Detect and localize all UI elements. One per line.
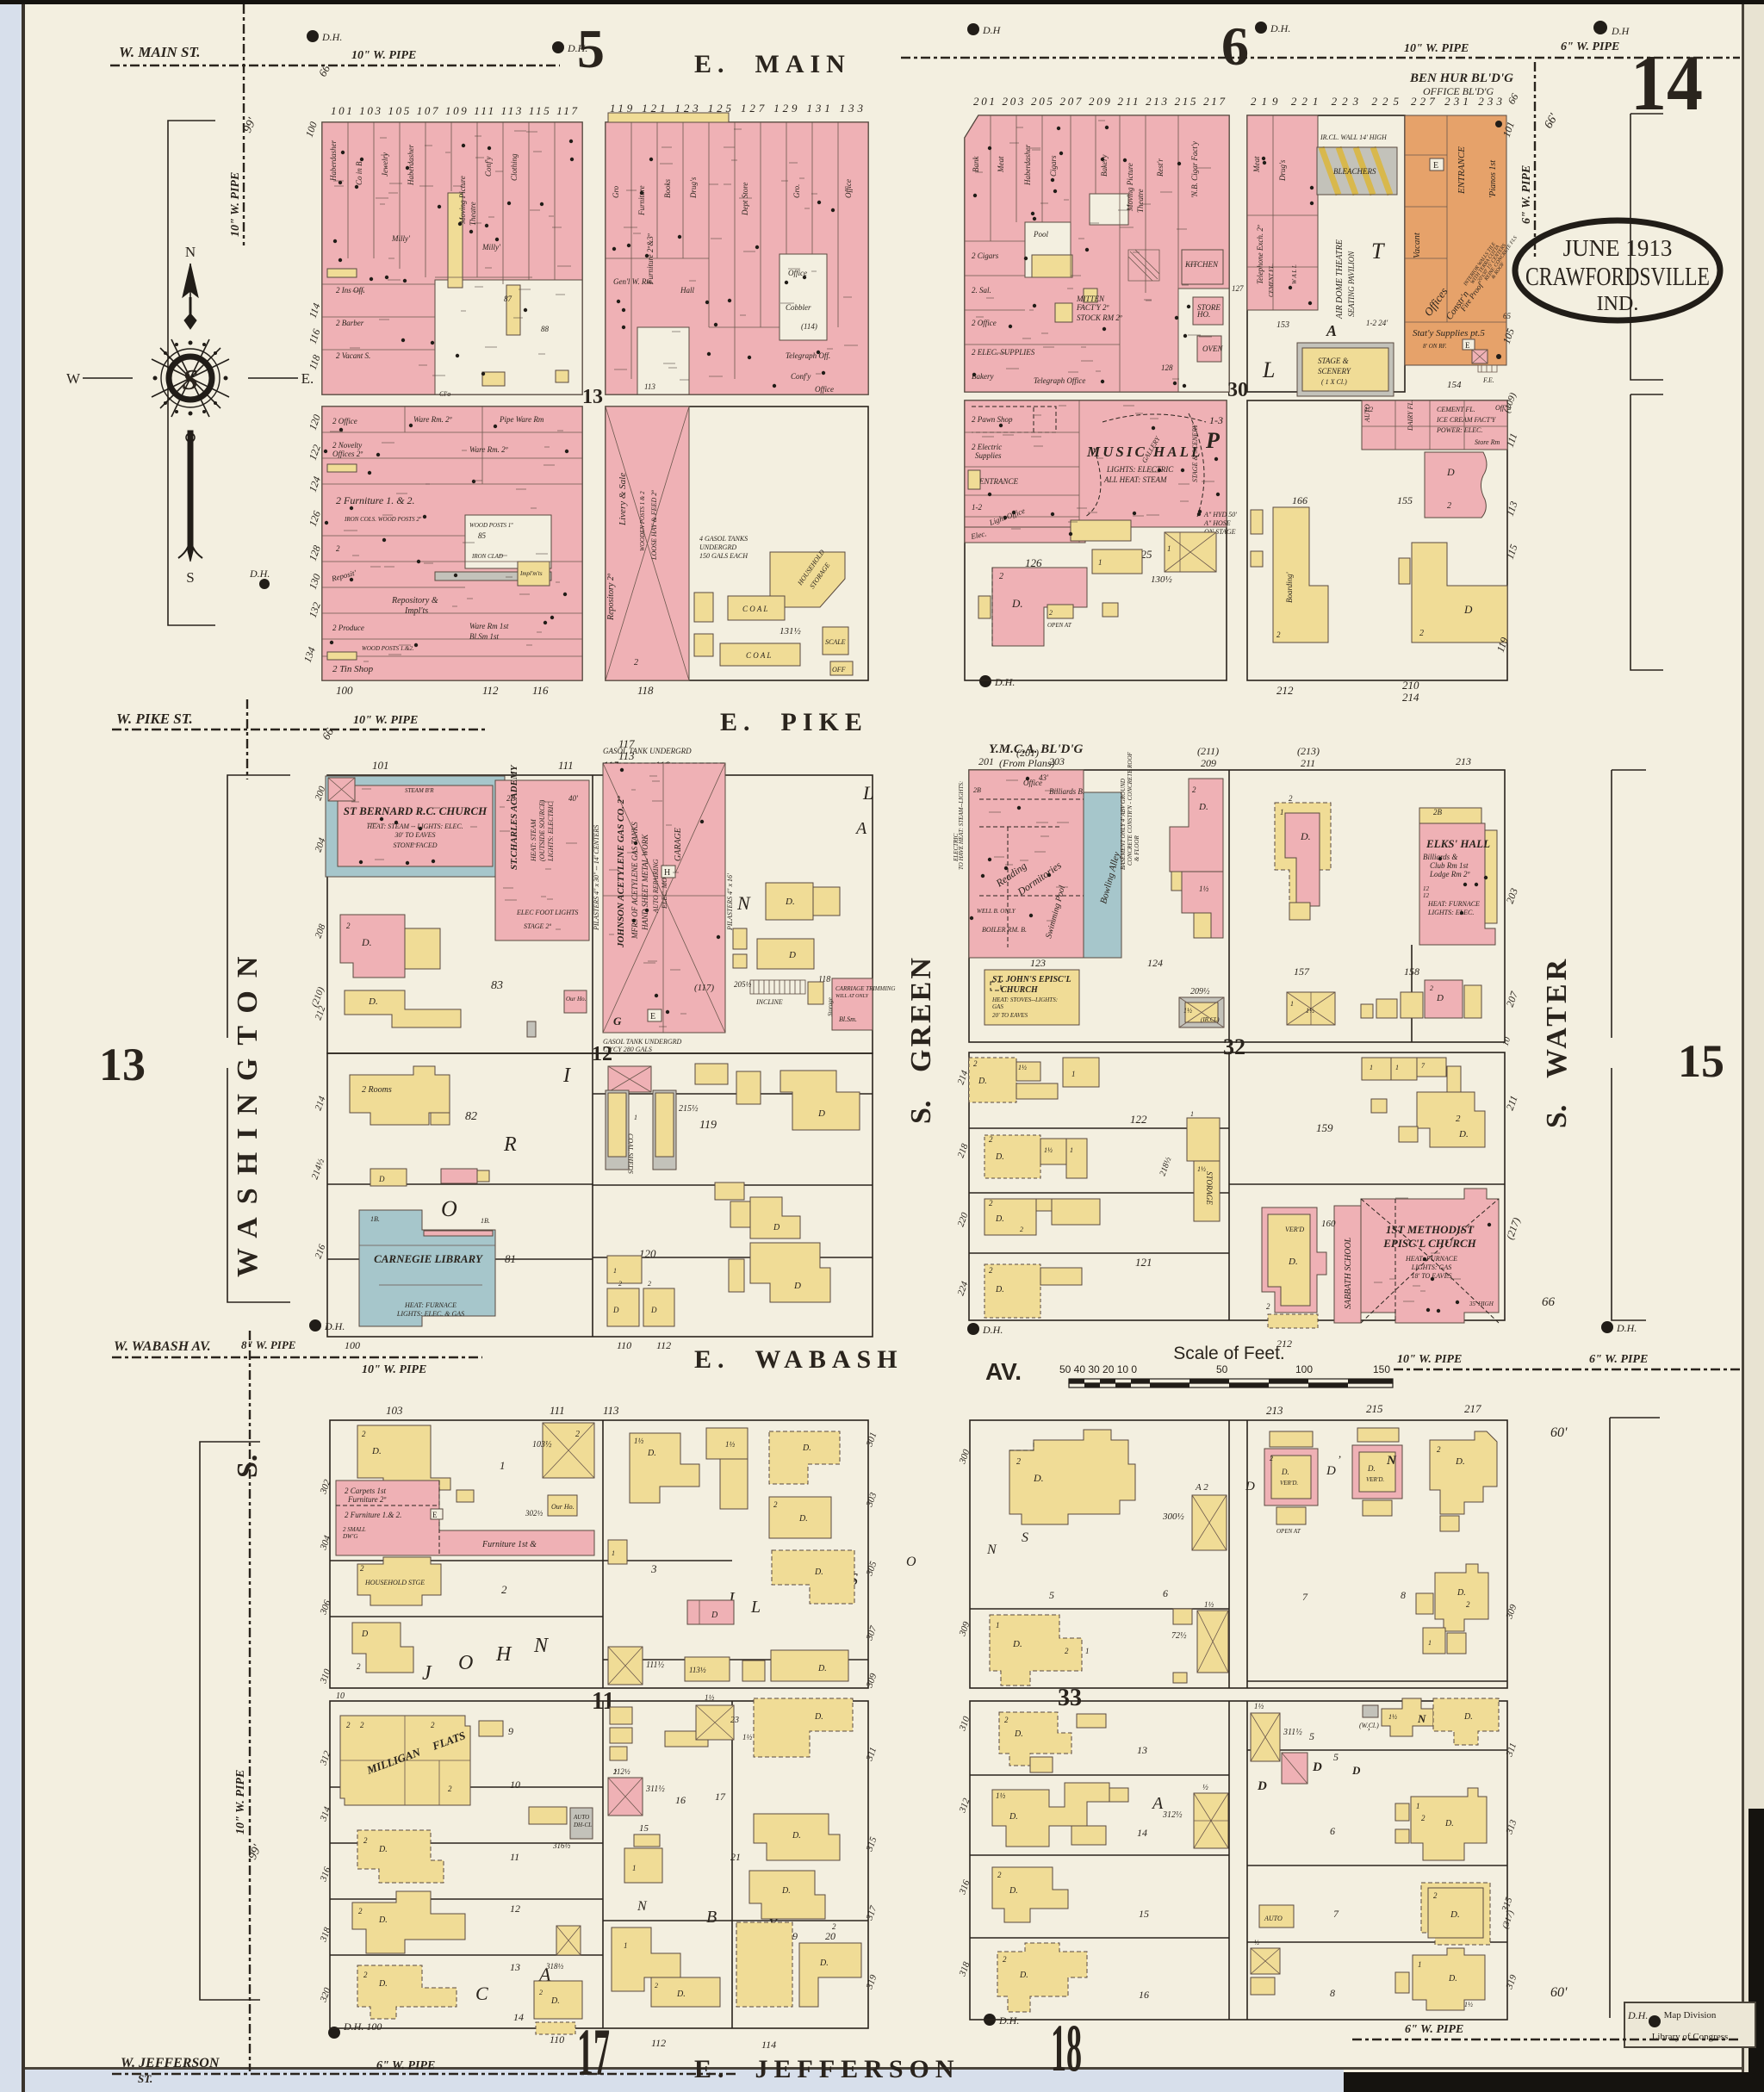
svg-text:DAIRY FL.: DAIRY FL. <box>1407 400 1414 431</box>
svg-text:1½: 1½ <box>742 1733 753 1741</box>
svg-text:83: 83 <box>491 979 503 992</box>
svg-text:AUTO REPAIRING: AUTO REPAIRING <box>652 859 660 914</box>
svg-text:Meat: Meat <box>1252 156 1261 173</box>
svg-text:311½: 311½ <box>645 1785 665 1794</box>
svg-text:D: D <box>378 1175 385 1183</box>
svg-text:2: 2 <box>648 1280 651 1288</box>
svg-text:112: 112 <box>651 2037 666 2049</box>
svg-text:MITTEN: MITTEN <box>1076 295 1105 303</box>
svg-text:S.: S. <box>1541 1105 1573 1128</box>
svg-text:123: 123 <box>1030 957 1046 969</box>
svg-text:214: 214 <box>1402 691 1419 704</box>
svg-text:Office: Office <box>844 179 853 198</box>
svg-text:215: 215 <box>1366 1402 1383 1415</box>
svg-text:LIGHTS: GAS: LIGHTS: GAS <box>1411 1263 1451 1271</box>
svg-text:2: 2 <box>539 1989 543 1996</box>
svg-text:STAGE & SCENERY: STAGE & SCENERY <box>1191 423 1199 482</box>
svg-text:D.: D. <box>1198 802 1208 812</box>
svg-text:D.: D. <box>1012 1639 1022 1649</box>
svg-text:D: D <box>1312 1760 1322 1774</box>
svg-text:2: 2 <box>1466 1600 1470 1609</box>
svg-text:Pipe Ware Rm: Pipe Ware Rm <box>499 415 544 424</box>
svg-text:2. Sal.: 2. Sal. <box>972 286 991 295</box>
svg-text:Gro: Gro <box>612 185 620 198</box>
svg-text:LOOSE HAY & FEED 2º: LOOSE HAY & FEED 2º <box>650 490 658 561</box>
svg-text:STAGE 2º: STAGE 2º <box>524 922 551 930</box>
svg-text:213: 213 <box>1266 1404 1283 1417</box>
svg-text:E. PIKE: E. PIKE <box>720 708 868 736</box>
svg-text:Milly': Milly' <box>391 234 411 243</box>
svg-text:17: 17 <box>715 1791 726 1803</box>
svg-text:1: 1 <box>624 1941 628 1950</box>
svg-text:POWER: ELEC.: POWER: ELEC. <box>1436 426 1482 434</box>
svg-text:2: 2 <box>448 1785 452 1793</box>
svg-text:(211): (211) <box>1197 745 1219 757</box>
svg-text:W. WABASH AV.: W. WABASH AV. <box>114 1339 211 1354</box>
svg-text:35' HIGH: 35' HIGH <box>1469 1301 1494 1307</box>
svg-text:CEMENT FL.: CEMENT FL. <box>1268 264 1275 297</box>
svg-text:G: G <box>613 1015 622 1027</box>
svg-text:13: 13 <box>582 386 603 408</box>
svg-text:A: A <box>1151 1794 1164 1813</box>
svg-text:P: P <box>1205 428 1221 453</box>
svg-text:Our Ho.: Our Ho. <box>566 996 587 1003</box>
svg-text:2 Furniture 1. & 2.: 2 Furniture 1. & 2. <box>336 494 415 506</box>
svg-text:217: 217 <box>1464 1402 1481 1415</box>
svg-text:33: 33 <box>1058 1685 1082 1711</box>
svg-text:W A L L: W A L L <box>1291 264 1298 284</box>
svg-text:1½: 1½ <box>996 1791 1006 1800</box>
svg-text:10" W. PIPE: 10" W. PIPE <box>1404 42 1469 55</box>
svg-text:300½: 300½ <box>1162 1512 1184 1522</box>
svg-text:D.: D. <box>1019 1971 1028 1980</box>
svg-text:W. PIKE ST.: W. PIKE ST. <box>116 711 193 727</box>
svg-text:HEAT: FURNACE: HEAT: FURNACE <box>404 1301 457 1309</box>
svg-text:203: 203 <box>1049 755 1065 767</box>
svg-text:Our Ho.: Our Ho. <box>551 1503 575 1511</box>
svg-text:1½: 1½ <box>1254 1702 1264 1710</box>
svg-text:1: 1 <box>996 1621 1000 1630</box>
svg-text:130½: 130½ <box>1151 574 1172 585</box>
svg-text:D: D <box>361 1630 369 1639</box>
svg-text:11: 11 <box>510 1851 519 1863</box>
svg-text:50 40 30 20 10 0: 50 40 30 20 10 0 <box>1059 1363 1137 1375</box>
svg-text:Moving Picture: Moving Picture <box>1126 163 1134 212</box>
svg-text:1½: 1½ <box>1197 1165 1206 1173</box>
svg-text:312½: 312½ <box>1162 1810 1183 1820</box>
svg-text:Repository 2º: Repository 2º <box>606 573 616 621</box>
svg-text:ALL HEAT: STEAM: ALL HEAT: STEAM <box>1103 475 1167 484</box>
svg-text:2 Produce: 2 Produce <box>332 624 364 632</box>
svg-text:Billiards B.: Billiards B. <box>1049 787 1084 796</box>
svg-text:2 Office: 2 Office <box>332 417 357 425</box>
svg-text:2: 2 <box>336 544 340 553</box>
svg-text:128: 128 <box>1161 363 1173 372</box>
svg-text:2: 2 <box>973 1059 978 1068</box>
svg-text:CARRIAGE TRIMMING: CARRIAGE TRIMMING <box>835 985 895 992</box>
svg-text:D.H.: D.H. <box>1627 2009 1648 2021</box>
svg-text:S: S <box>186 569 194 586</box>
svg-text:W. JEFFERSON: W. JEFFERSON <box>121 2056 220 2070</box>
svg-text:6" W. PIPE: 6" W. PIPE <box>1520 165 1533 224</box>
svg-text:L: L <box>862 782 873 804</box>
svg-text:1: 1 <box>1395 1064 1399 1071</box>
svg-text:2: 2 <box>997 1871 1002 1879</box>
svg-text:Stat'y Supplies pt.5: Stat'y Supplies pt.5 <box>1413 328 1485 338</box>
svg-text:S.: S. <box>905 1101 937 1124</box>
svg-text:D.: D. <box>1033 1472 1044 1484</box>
svg-text:1½: 1½ <box>1199 885 1209 893</box>
svg-text:119: 119 <box>699 1119 717 1132</box>
svg-text:(117): (117) <box>694 983 714 993</box>
svg-text:Theatre: Theatre <box>1136 189 1145 213</box>
svg-text:2: 2 <box>613 1768 617 1776</box>
svg-text:211: 211 <box>1301 757 1315 769</box>
svg-text:PILASTERS 4" x 16': PILASTERS 4" x 16' <box>726 873 734 931</box>
svg-text:HO.: HO. <box>1196 310 1210 319</box>
svg-text:10: 10 <box>336 1692 345 1701</box>
svg-text:IR.CL. WALL 14' HIGH: IR.CL. WALL 14' HIGH <box>1320 133 1388 141</box>
svg-text:VER'D: VER'D <box>1285 1226 1304 1233</box>
svg-text:Boarding': Boarding' <box>1285 571 1294 603</box>
svg-text:Hall: Hall <box>680 286 695 295</box>
svg-text:2 Pawn Shop: 2 Pawn Shop <box>972 415 1013 424</box>
svg-text:CARNEGIE LIBRARY: CARNEGIE LIBRARY <box>374 1252 483 1265</box>
svg-text:JUNE 1913: JUNE 1913 <box>1563 235 1673 261</box>
svg-text:1½: 1½ <box>1044 1146 1053 1154</box>
svg-text:Haberdasher: Haberdasher <box>407 144 415 186</box>
svg-text:10" W. PIPE: 10" W. PIPE <box>353 714 418 727</box>
svg-text:HEAT: STOVES--LIGHTS:: HEAT: STOVES--LIGHTS: <box>991 996 1058 1003</box>
svg-text:D.: D. <box>550 1996 560 2006</box>
svg-text:10" W. PIPE: 10" W. PIPE <box>1397 1353 1462 1366</box>
svg-text:ST. JOHN'S EPISC'L: ST. JOHN'S EPISC'L <box>992 975 1071 984</box>
svg-text:6: 6 <box>1330 1825 1335 1837</box>
svg-text:FACT'Y 2º: FACT'Y 2º <box>1076 303 1109 312</box>
svg-text:7: 7 <box>1333 1908 1339 1920</box>
svg-text:159: 159 <box>1316 1121 1333 1134</box>
svg-text:Scale of Feet.: Scale of Feet. <box>1173 1344 1285 1363</box>
svg-text:E. JEFFERSON: E. JEFFERSON <box>694 2055 960 2083</box>
svg-text:Haberdasher: Haberdasher <box>1023 144 1032 186</box>
svg-text:E: E <box>650 1012 655 1021</box>
svg-text:Offices 2º: Offices 2º <box>332 450 363 458</box>
svg-text:Ware Rm. 2º: Ware Rm. 2º <box>469 445 508 454</box>
svg-text:2: 2 <box>1430 984 1433 992</box>
svg-text:CONCRETE CONSTR'N - CONCRETE R: CONCRETE CONSTR'N - CONCRETE ROOF <box>1127 751 1134 866</box>
svg-text:GAS: GAS <box>992 1003 1003 1010</box>
svg-text:Furniture 2º&3º: Furniture 2º&3º <box>646 233 655 285</box>
svg-text:215½: 215½ <box>679 1104 699 1114</box>
svg-text:A 2: A 2 <box>1195 1482 1208 1493</box>
svg-text:6: 6 <box>1221 16 1249 77</box>
svg-text:STORAGE: STORAGE <box>1205 1171 1214 1205</box>
svg-text:1½: 1½ <box>1388 1713 1397 1721</box>
svg-text:Club Rm 1st: Club Rm 1st <box>1430 861 1469 870</box>
svg-text:Impl'm'ts: Impl'm'ts <box>519 570 543 577</box>
svg-text:2: 2 <box>634 658 638 667</box>
svg-text:D: D <box>650 1306 657 1314</box>
svg-text:Furniture: Furniture <box>637 185 646 216</box>
svg-text:SABBATH SCHOOL: SABBATH SCHOOL <box>1344 1237 1353 1309</box>
svg-text:2: 2 <box>999 572 1003 581</box>
svg-text:Storage: Storage <box>827 997 834 1016</box>
svg-text:43': 43' <box>1039 773 1049 782</box>
svg-text:( 1 X Cl.): ( 1 X Cl.) <box>1321 378 1347 386</box>
svg-text:1½: 1½ <box>1306 1007 1314 1015</box>
svg-text:2: 2 <box>575 1430 580 1439</box>
svg-text:1: 1 <box>1098 558 1102 567</box>
svg-text:D.: D. <box>1463 1712 1473 1722</box>
svg-text:60': 60' <box>1550 1985 1568 2000</box>
svg-text:2 Cigars: 2 Cigars <box>972 251 999 260</box>
svg-text:Livery & Sale: Livery & Sale <box>618 473 628 526</box>
svg-text:100: 100 <box>345 1339 360 1351</box>
svg-text:D.: D. <box>1014 1729 1023 1739</box>
svg-text:D.H: D.H <box>982 24 1002 36</box>
svg-text:D.: D. <box>1455 1456 1465 1467</box>
svg-text:ELKS' HALL: ELKS' HALL <box>1425 837 1490 850</box>
svg-text:2: 2 <box>431 1721 435 1729</box>
svg-text:82: 82 <box>465 1110 477 1123</box>
svg-text:E. MAIN: E. MAIN <box>694 50 851 78</box>
svg-text:1B.: 1B. <box>370 1215 380 1223</box>
svg-text:13: 13 <box>1137 1744 1147 1756</box>
svg-text:D: D <box>1446 466 1455 478</box>
svg-text:2: 2 <box>618 1280 622 1288</box>
svg-text:WATER: WATER <box>1541 956 1573 1078</box>
svg-text:1: 1 <box>500 1459 506 1472</box>
svg-text:O: O <box>458 1652 473 1674</box>
svg-text:112: 112 <box>656 1339 671 1351</box>
svg-text:1: 1 <box>613 1267 617 1275</box>
svg-text:3: 3 <box>650 1562 657 1575</box>
svg-text:209: 209 <box>1201 757 1216 769</box>
svg-text:,: , <box>1339 1447 1341 1460</box>
svg-text:D.: D. <box>378 1845 388 1854</box>
svg-text:STEAM B'R: STEAM B'R <box>405 787 434 794</box>
svg-text:D.H.: D.H. <box>1270 22 1290 34</box>
svg-text:D.: D. <box>1288 1257 1298 1267</box>
svg-text:D.: D. <box>378 1915 388 1925</box>
svg-text:DH-CL: DH-CL <box>573 1822 592 1828</box>
svg-text:1-2: 1-2 <box>972 503 982 512</box>
svg-text:D: D <box>793 1281 801 1291</box>
svg-text:201 203 205 207 209 211 213 21: 201 203 205 207 209 211 213 215 217 <box>973 95 1226 108</box>
svg-text:2 Vacant S.: 2 Vacant S. <box>336 351 370 360</box>
svg-text:D.H: D.H <box>1611 25 1630 37</box>
svg-text:124: 124 <box>1147 957 1163 969</box>
svg-text:1: 1 <box>1190 1110 1194 1118</box>
svg-text:BASEMENT ONLY 4' ABV GROUND: BASEMENT ONLY 4' ABV GROUND <box>1120 779 1127 870</box>
svg-text:2: 2 <box>1004 1716 1009 1724</box>
svg-text:2: 2 <box>989 1199 993 1207</box>
svg-text:2B: 2B <box>506 794 516 803</box>
svg-text:Conf'y: Conf'y <box>791 372 811 381</box>
svg-text:½: ½ <box>1254 1939 1259 1946</box>
svg-text:D: D <box>817 1108 825 1119</box>
svg-text:Dept Store: Dept Store <box>741 183 749 216</box>
svg-text:1: 1 <box>1290 1000 1294 1008</box>
svg-text:118: 118 <box>637 684 654 697</box>
svg-text:2: 2 <box>773 1500 778 1509</box>
svg-text:6" W. PIPE: 6" W. PIPE <box>1589 1353 1648 1366</box>
svg-text:21: 21 <box>730 1851 741 1863</box>
svg-text:2: 2 <box>1289 794 1293 803</box>
svg-text:WILL AT ONLY: WILL AT ONLY <box>835 994 869 999</box>
svg-text:H: H <box>495 1643 512 1666</box>
svg-text:1: 1 <box>632 1864 637 1872</box>
svg-text:18: 18 <box>1051 2010 1082 2085</box>
svg-text:Clothing: Clothing <box>510 153 519 181</box>
svg-text:Haberdasher: Haberdasher <box>329 140 338 182</box>
svg-text:Ware Rm. 2º: Ware Rm. 2º <box>413 415 452 424</box>
svg-text:D.: D. <box>995 1214 1004 1224</box>
svg-text:A: A <box>1326 322 1337 339</box>
svg-text:IRON COLS. WOOD POSTS 2º: IRON COLS. WOOD POSTS 2º <box>344 516 422 523</box>
svg-text:2 Carpets 1st: 2 Carpets 1st <box>345 1487 387 1495</box>
svg-text:1: 1 <box>634 1114 637 1121</box>
svg-text:1-3: 1-3 <box>1209 414 1223 426</box>
svg-text:201: 201 <box>978 755 994 767</box>
svg-text:2 Novelty: 2 Novelty <box>332 441 362 450</box>
svg-text:160: 160 <box>1321 1219 1336 1229</box>
svg-text:AUTO: AUTO <box>573 1814 589 1821</box>
svg-text:D.: D. <box>1457 1588 1466 1598</box>
svg-text:103: 103 <box>386 1404 403 1417</box>
svg-text:12: 12 <box>1423 885 1430 892</box>
svg-text:WOOD POSTS 1.&2.: WOOD POSTS 1.&2. <box>362 645 414 652</box>
svg-text:1: 1 <box>1428 1639 1432 1647</box>
svg-text:N: N <box>185 244 196 260</box>
svg-text:CHURCH: CHURCH <box>1001 985 1039 995</box>
svg-text:L: L <box>1262 357 1275 382</box>
svg-text:111: 111 <box>558 759 574 772</box>
svg-text:72½: 72½ <box>1171 1631 1187 1641</box>
svg-text:1: 1 <box>1071 1070 1076 1078</box>
svg-text:2: 2 <box>1421 1814 1425 1822</box>
svg-text:12: 12 <box>510 1903 520 1915</box>
svg-text:212: 212 <box>1276 1338 1292 1350</box>
svg-text:2 Furniture 1.& 2.: 2 Furniture 1.& 2. <box>345 1511 401 1519</box>
svg-text:1½: 1½ <box>705 1693 715 1702</box>
svg-text:212: 212 <box>1276 684 1294 697</box>
svg-text:Theatre: Theatre <box>469 202 477 226</box>
svg-text:& FLOOR: & FLOOR <box>1134 835 1140 861</box>
svg-text:2: 2 <box>1419 629 1424 638</box>
svg-text:Telegraph Office: Telegraph Office <box>1034 376 1085 385</box>
svg-text:GREEN: GREEN <box>905 955 937 1072</box>
svg-text:14: 14 <box>1630 39 1703 127</box>
svg-text:C: C <box>475 1983 488 2004</box>
svg-text:AUTO: AUTO <box>1264 1915 1283 1922</box>
svg-text:2: 2 <box>357 1662 361 1671</box>
svg-text:BOILER RM. B.: BOILER RM. B. <box>982 926 1027 934</box>
svg-text:BLEACHERS: BLEACHERS <box>1333 167 1376 176</box>
svg-text:CRAWFORDSVILLE: CRAWFORDSVILLE <box>1525 261 1710 291</box>
svg-text:13: 13 <box>510 1961 520 1973</box>
svg-text:155: 155 <box>1397 494 1413 506</box>
svg-text:SEATING PAVILION: SEATING PAVILION <box>1347 251 1356 317</box>
svg-text:20' TO EAVES: 20' TO EAVES <box>992 1012 1028 1019</box>
svg-text:154: 154 <box>1447 380 1462 390</box>
svg-text:Telegraph Off.: Telegraph Off. <box>786 351 830 360</box>
svg-text:40': 40' <box>568 794 579 803</box>
svg-text:2: 2 <box>989 1266 993 1275</box>
svg-text:D.H. 100: D.H. 100 <box>343 2021 382 2033</box>
svg-text:Lodge Rm 2º: Lodge Rm 2º <box>1429 870 1469 878</box>
svg-text:8: 8 <box>1401 1589 1406 1601</box>
svg-text:Cigars: Cigars <box>1049 155 1058 177</box>
svg-text:116: 116 <box>532 684 549 697</box>
svg-text:2: 2 <box>346 922 351 930</box>
svg-text:122: 122 <box>1130 1113 1147 1126</box>
svg-text:1½: 1½ <box>725 1440 736 1449</box>
svg-text:R: R <box>503 1133 517 1156</box>
svg-text:W. MAIN ST.: W. MAIN ST. <box>119 44 200 60</box>
svg-text:150 GALS EACH: 150 GALS EACH <box>699 552 748 560</box>
svg-text:D: D <box>788 950 796 960</box>
svg-text:ELECTRIC: ELECTRIC <box>953 833 960 862</box>
svg-text:2: 2 <box>1437 1445 1441 1454</box>
svg-text:D.: D. <box>814 1567 823 1577</box>
svg-text:2: 2 <box>1270 1455 1273 1462</box>
svg-text:N: N <box>1417 1712 1426 1725</box>
svg-text:166: 166 <box>1292 494 1307 506</box>
svg-text:S: S <box>1022 1530 1028 1545</box>
svg-text:D.: D. <box>1444 1819 1454 1828</box>
svg-text:7: 7 <box>1302 1591 1308 1603</box>
svg-text:D.: D. <box>1448 1974 1457 1983</box>
svg-text:D: D <box>711 1611 718 1620</box>
svg-text:D.: D. <box>1009 1812 1018 1822</box>
svg-text:ST.CHARLES ACADEMY: ST.CHARLES ACADEMY <box>509 764 519 870</box>
svg-text:17: 17 <box>577 2014 610 2089</box>
svg-text:15: 15 <box>1678 1035 1724 1087</box>
svg-text:D.: D. <box>792 1831 801 1841</box>
svg-text:85: 85 <box>478 531 487 540</box>
svg-text:VER'D.: VER'D. <box>1280 1480 1298 1487</box>
svg-text:10" W. PIPE: 10" W. PIPE <box>234 1770 247 1834</box>
svg-text:C O A L: C O A L <box>742 605 767 613</box>
svg-text:2: 2 <box>360 1564 364 1573</box>
svg-text:101 103 105 107 109 111 113 11: 101 103 105 107 109 111 113 115 117 <box>331 104 578 117</box>
svg-text:L: L <box>750 1598 761 1617</box>
svg-text:6" W. PIPE: 6" W. PIPE <box>1405 2023 1463 2036</box>
svg-text:14: 14 <box>1137 1827 1147 1839</box>
svg-text:I: I <box>562 1065 571 1087</box>
svg-text:2: 2 <box>1049 609 1053 617</box>
svg-text:111½: 111½ <box>646 1661 665 1670</box>
svg-text:66: 66 <box>1542 1295 1556 1309</box>
svg-text:2 Barber: 2 Barber <box>336 319 364 327</box>
svg-text:10" W. PIPE: 10" W. PIPE <box>229 172 242 237</box>
svg-text:A: A <box>854 819 867 838</box>
svg-text:10" W. PIPE: 10" W. PIPE <box>362 1363 426 1376</box>
svg-text:HOUSEHOLD STGE: HOUSEHOLD STGE <box>364 1579 425 1586</box>
svg-text:D.H.: D.H. <box>1616 1322 1637 1334</box>
svg-text:2 Office: 2 Office <box>972 319 997 327</box>
svg-text:Rest'r: Rest'r <box>1156 158 1165 177</box>
svg-text:65: 65 <box>1503 312 1512 320</box>
svg-text:D.: D. <box>361 936 372 948</box>
svg-text:114: 114 <box>761 2039 776 2051</box>
svg-text:1: 1 <box>1167 544 1171 553</box>
svg-text:S: S <box>183 364 199 396</box>
svg-text:J: J <box>422 1662 432 1685</box>
svg-text:HEAT: FURNACE: HEAT: FURNACE <box>1427 900 1480 908</box>
svg-text:131½: 131½ <box>780 626 801 636</box>
